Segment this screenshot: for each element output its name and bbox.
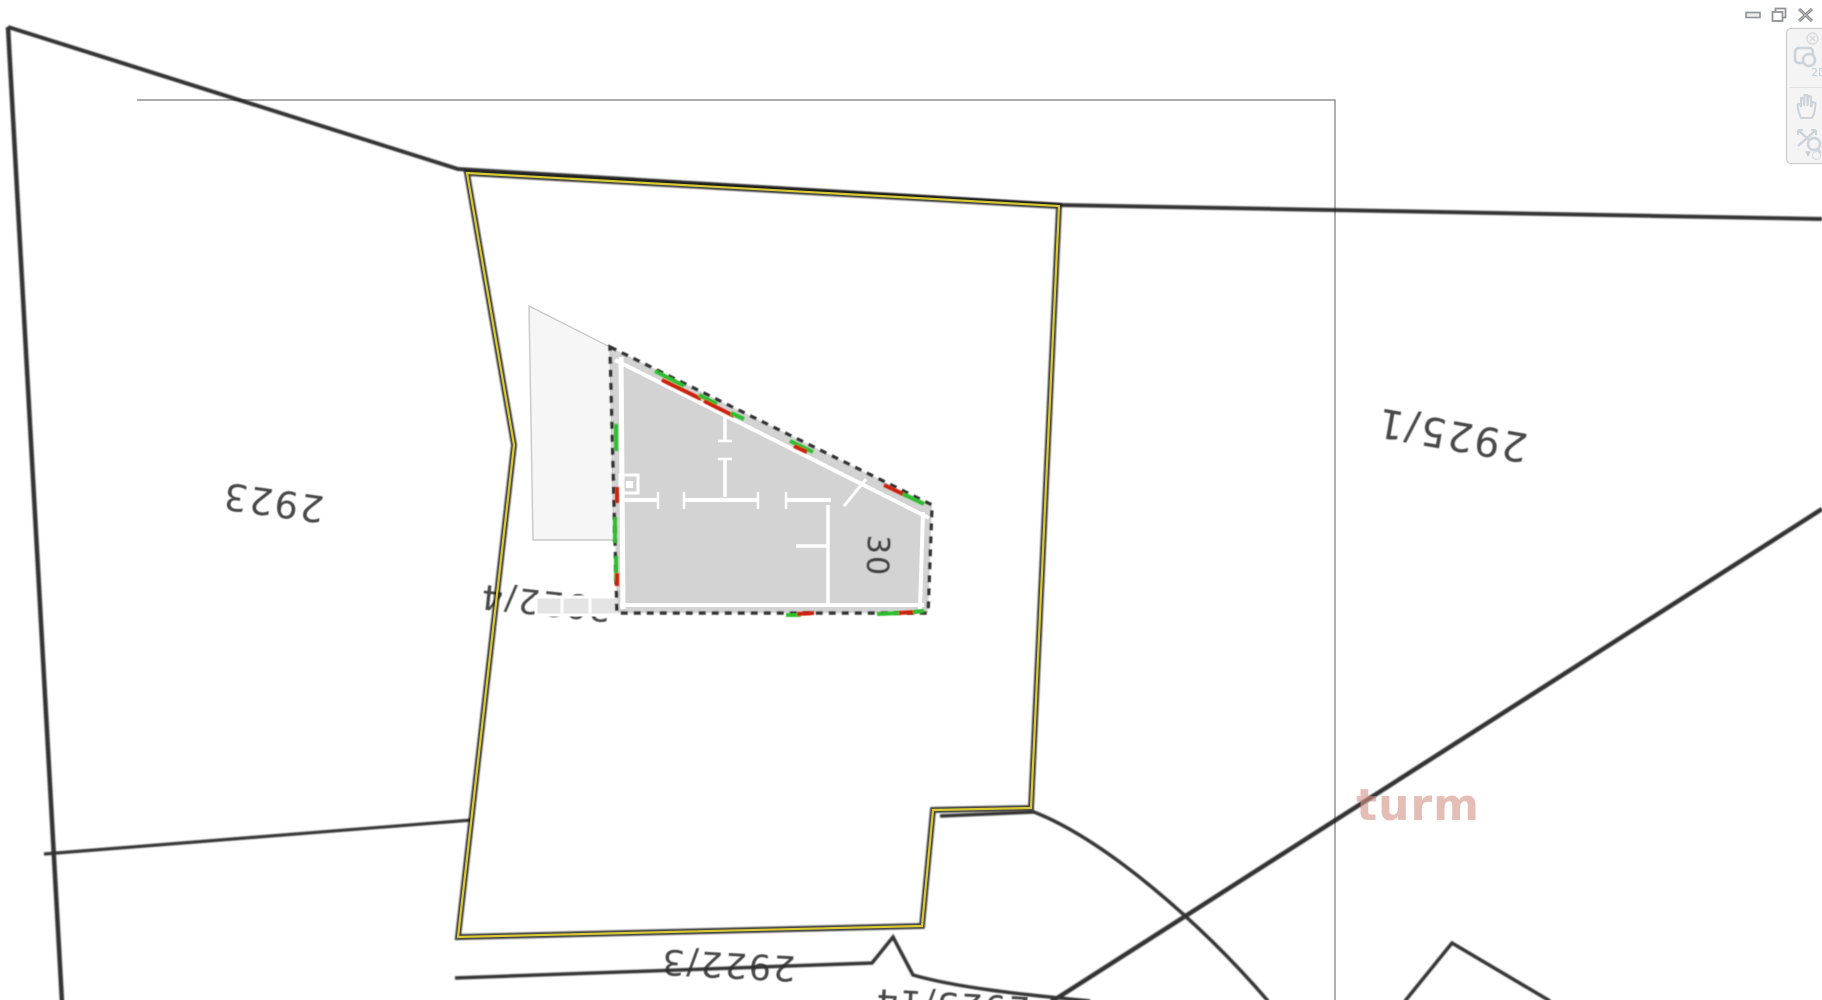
- restore-button[interactable]: [1771, 7, 1788, 23]
- parcel-label: 2922/3: [659, 940, 796, 987]
- floorplan-extension: [529, 306, 614, 540]
- zoom-2d-tool[interactable]: 2D: [1791, 47, 1822, 77]
- minimize-icon: [1745, 10, 1762, 20]
- restore-icon: [1771, 7, 1788, 23]
- parcel-2925-1-diagonal-boundary: [1051, 509, 1822, 1000]
- parcel-label: 2923: [219, 474, 326, 531]
- map-canvas[interactable]: 29232925/12922/42922/32925/14: [0, 0, 1822, 1000]
- toolbar-separator: [1790, 87, 1822, 88]
- application-window: 29232925/12922/42922/32925/14: [0, 0, 1822, 1000]
- svg-text:2D: 2D: [1811, 66, 1822, 79]
- parcel-2923-south-boundary: [44, 820, 472, 854]
- navigation-toolbar: 2D ▾: [1786, 28, 1822, 164]
- toolbar-header[interactable]: [1787, 29, 1822, 44]
- provider-3d-logo: 3D: [1482, 772, 1558, 832]
- provider-3d-logo-text: 3D: [1490, 778, 1550, 827]
- floorplan-step: [536, 597, 618, 615]
- window-controls: [1745, 6, 1814, 24]
- road-boundary-line: [8, 27, 1822, 219]
- pan-hand-icon: [1793, 90, 1822, 122]
- toolbar-grip-icon: [1812, 151, 1821, 160]
- bottom-right-parcel-corner: [1405, 943, 1550, 1000]
- parcel-label: 2925/1: [1373, 398, 1531, 470]
- house-number-label: 30: [859, 534, 895, 577]
- building-footprint[interactable]: 30: [529, 306, 932, 615]
- provider-watermark: turm: [1340, 780, 1480, 832]
- chevron-down-icon: ▾: [1805, 149, 1811, 159]
- minimize-button[interactable]: [1745, 10, 1762, 20]
- close-button[interactable]: [1797, 7, 1814, 23]
- road-junction-right-boundary: [940, 812, 1268, 1000]
- zoom-2d-icon: 2D: [1792, 45, 1822, 79]
- toolbar-close-icon[interactable]: [1806, 32, 1819, 45]
- close-icon: [1797, 7, 1814, 23]
- pan-tool[interactable]: [1791, 91, 1822, 121]
